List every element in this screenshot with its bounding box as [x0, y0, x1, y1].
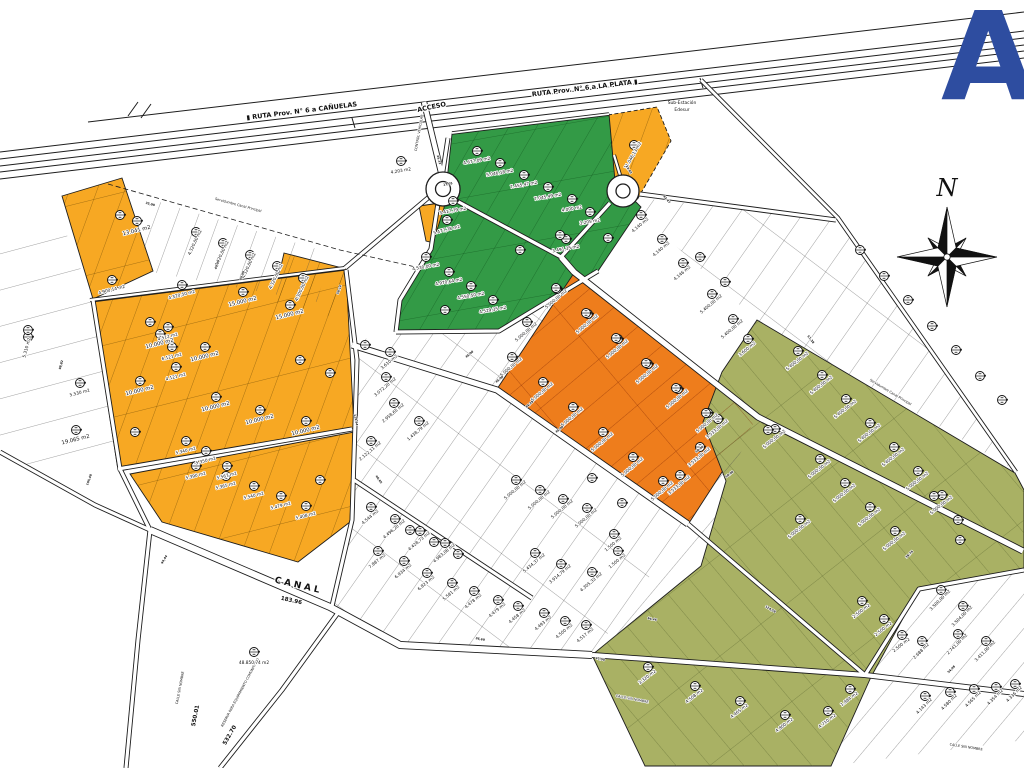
- annotation-label: Sub-Estación: [668, 99, 697, 106]
- lot-marker: [397, 157, 407, 166]
- lot-marker: [880, 272, 890, 281]
- brand-logo-letter-a: A: [941, 0, 1024, 128]
- lot-marker: [976, 372, 986, 381]
- lot-marker: [998, 396, 1008, 405]
- annotation-label: 550.01: [191, 705, 201, 727]
- compass-rose: N: [897, 174, 997, 307]
- lot-marker: [133, 217, 143, 226]
- lot-marker: [904, 296, 914, 305]
- annotation-label: 532.70: [222, 725, 238, 747]
- lot-marker: [250, 648, 260, 657]
- parcel-area-label: 4.203 m2: [390, 166, 412, 176]
- compass-north-label: N: [936, 174, 959, 202]
- cadastral-map: 13.041 m24.900,14 m24.320,50 m24.512 m26…: [0, 0, 1024, 768]
- lot-marker: [952, 346, 962, 355]
- annotation-label: RUTA Prov. N° 6 a LA PLATA ▮: [531, 78, 638, 99]
- annotation-label: 48.850,74 m2: [239, 660, 269, 666]
- annotation-label: Edesur: [674, 107, 689, 113]
- annotation-label: CONTROL VEHICULAR: [414, 114, 425, 152]
- lot-marker: [928, 322, 938, 331]
- annotation-label: Servidumbre Canal Principal: [215, 197, 262, 213]
- subdivision-map-canvas: 13.041 m24.900,14 m24.320,50 m24.512 m26…: [0, 0, 1024, 768]
- annotation-label: RESERVA PARA EQUIPAMIENTO COMUNITARIO: [220, 657, 260, 727]
- annotation-label: CALLE SIN NOMBRE: [175, 671, 185, 705]
- dimension-label: 105,48: [85, 474, 93, 486]
- dimension-label: 94,44: [160, 554, 168, 564]
